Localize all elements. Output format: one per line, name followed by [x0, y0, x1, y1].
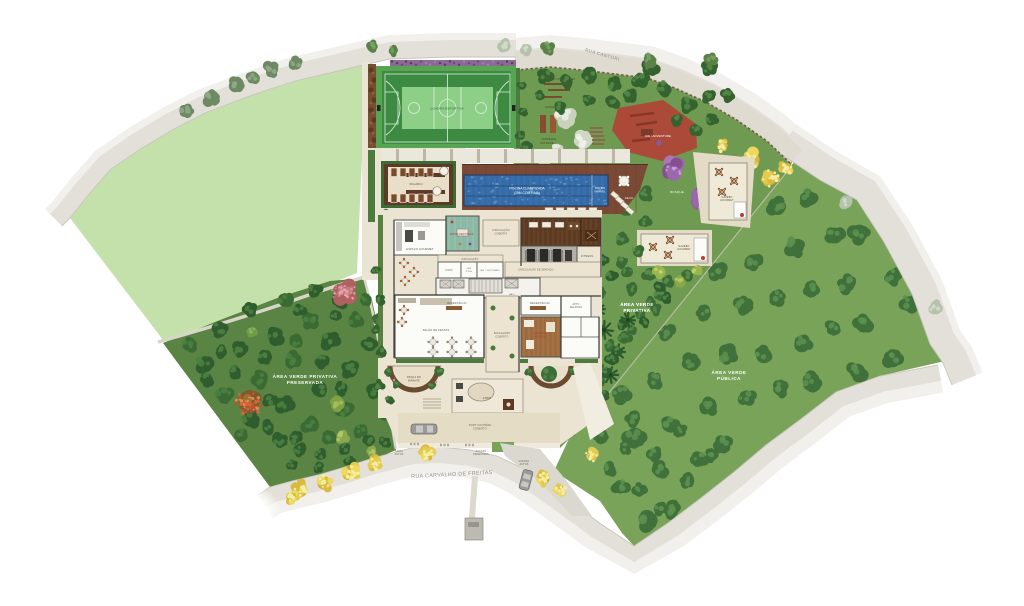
svg-text:PEDESTRES: PEDESTRES — [473, 454, 489, 456]
svg-text:ÁREA VERDE: ÁREA VERDE — [712, 369, 747, 375]
svg-text:P.N.E: P.N.E — [466, 271, 473, 273]
svg-text:BOSQUE: BOSQUE — [670, 190, 684, 194]
svg-text:MIRANTE: MIRANTE — [408, 380, 420, 383]
svg-text:BELEZA: BELEZA — [535, 336, 546, 339]
svg-text:ATRIO: ATRIO — [483, 396, 492, 400]
svg-text:SAÍDA: SAÍDA — [395, 450, 403, 453]
svg-text:ÁREA VERDE PRIVATIVA: ÁREA VERDE PRIVATIVA — [273, 373, 338, 379]
svg-text:LAV / VESTIÁRIO: LAV / VESTIÁRIO — [480, 269, 501, 272]
svg-text:CIRCULAÇÃO DE SERVIÇO: CIRCULAÇÃO DE SERVIÇO — [518, 269, 553, 272]
svg-text:RECEPÇÃO 02: RECEPÇÃO 02 — [530, 302, 550, 305]
svg-text:AUTOS: AUTOS — [395, 453, 404, 456]
svg-text:PRESERVADA: PRESERVADA — [287, 380, 324, 385]
svg-text:BRINQUEDOTECA: BRINQUEDOTECA — [450, 233, 474, 236]
svg-text:COBERTO: COBERTO — [473, 428, 487, 431]
svg-text:(25M COM RAIA): (25M COM RAIA) — [514, 191, 540, 195]
svg-text:ACESSO: ACESSO — [476, 450, 487, 453]
svg-text:CIRCULAÇÃO: CIRCULAÇÃO — [461, 258, 478, 261]
svg-text:DECK: DECK — [625, 196, 634, 200]
svg-text:FITNESS: FITNESS — [581, 254, 593, 258]
svg-text:KID / ADVENTURE: KID / ADVENTURE — [645, 134, 671, 138]
svg-text:PÚBLICA: PÚBLICA — [717, 375, 741, 381]
svg-text:LAV: LAV — [467, 267, 472, 270]
svg-text:GOURMET: GOURMET — [677, 248, 691, 251]
svg-text:ÁREA VERDE: ÁREA VERDE — [620, 302, 654, 307]
svg-text:PISCINA CLIMATIZADA: PISCINA CLIMATIZADA — [509, 187, 545, 191]
svg-text:GOURMET: GOURMET — [720, 199, 734, 202]
svg-text:SOLÁRIO: SOLÁRIO — [409, 182, 422, 186]
svg-text:OUTDOOR: OUTDOOR — [540, 142, 554, 145]
svg-text:PRAÇA ZEN: PRAÇA ZEN — [543, 383, 558, 386]
svg-text:RECEPÇÃO 01: RECEPÇÃO 01 — [447, 302, 467, 305]
svg-text:AUTOS: AUTOS — [520, 463, 529, 466]
svg-text:APTO: APTO — [572, 303, 579, 306]
svg-text:COPA: COPA — [445, 269, 452, 272]
svg-text:ESPAÇO GOURMET: ESPAÇO GOURMET — [406, 247, 434, 251]
svg-text:ZELADOR: ZELADOR — [570, 306, 582, 309]
svg-text:QUIOSQUE: QUIOSQUE — [542, 138, 557, 141]
svg-text:COBERTO: COBERTO — [495, 336, 508, 339]
svg-text:QUADRA ESPORTIVA: QUADRA ESPORTIVA — [430, 107, 464, 111]
svg-text:INFANTIL: INFANTIL — [595, 190, 607, 193]
svg-text:PRIVATIVA: PRIVATIVA — [624, 308, 651, 313]
svg-text:COBERTA: COBERTA — [495, 233, 508, 236]
svg-text:ACESSO: ACESSO — [519, 460, 530, 463]
svg-text:HALL: HALL — [509, 293, 516, 296]
